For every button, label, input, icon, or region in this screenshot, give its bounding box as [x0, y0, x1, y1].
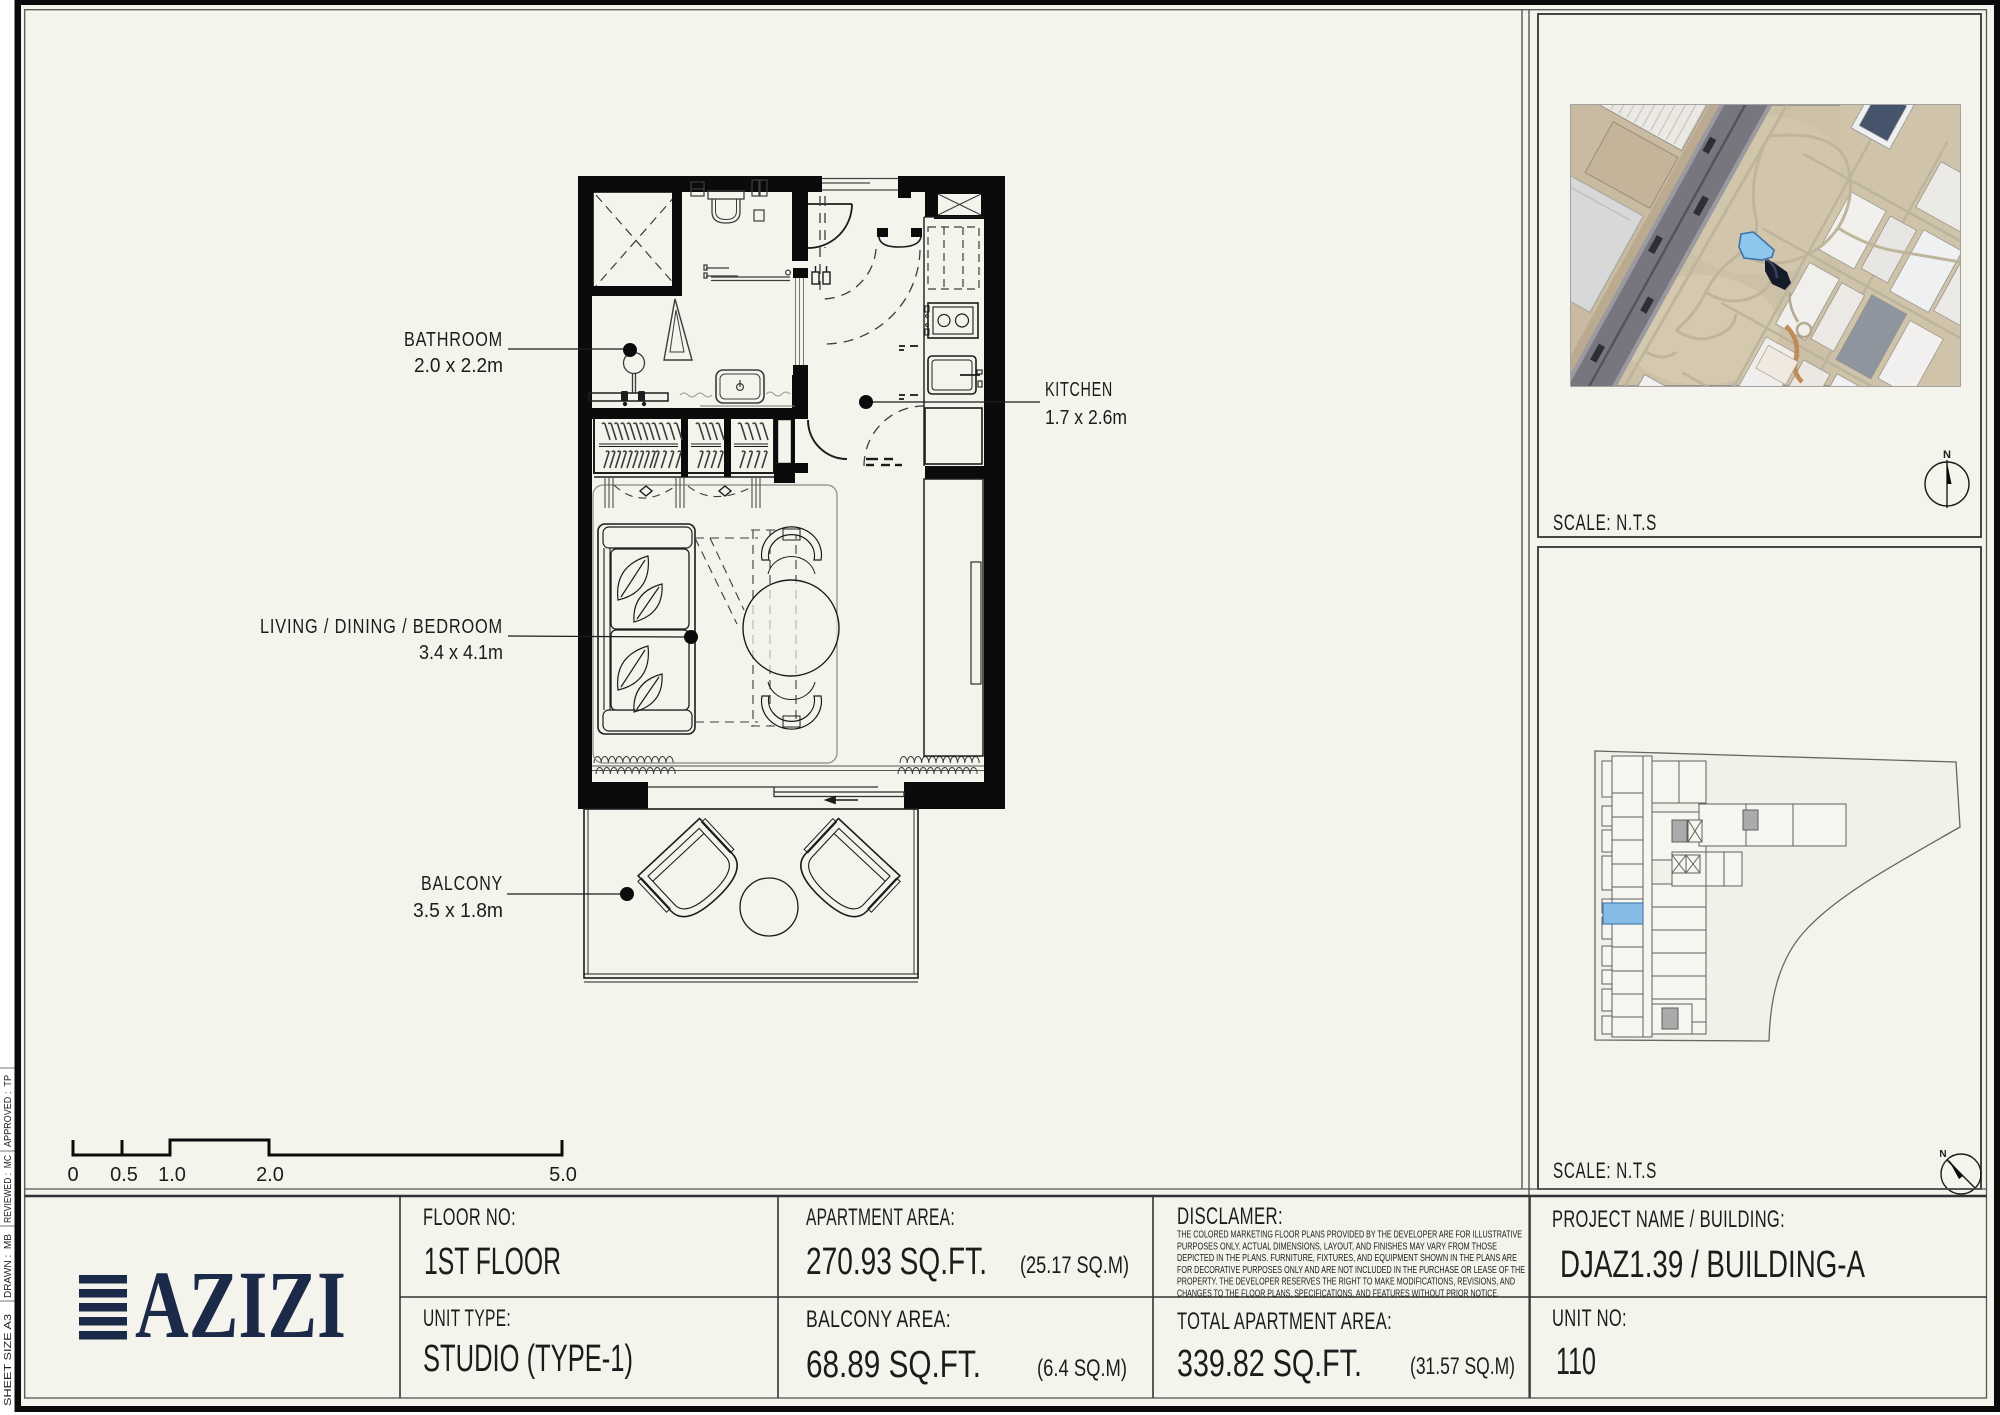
svg-text:1.0: 1.0 [158, 1164, 186, 1186]
svg-text:CHANGES TO THE FLOOR PLANS, SP: CHANGES TO THE FLOOR PLANS, SPECIFICATIO… [1177, 1289, 1499, 1300]
svg-text:2.0: 2.0 [256, 1164, 284, 1186]
svg-text:(31.57 SQ.M): (31.57 SQ.M) [1410, 1353, 1515, 1380]
svg-text:FOR DECORATIVE PURPOSES ONLY A: FOR DECORATIVE PURPOSES ONLY AND ARE NOT… [1177, 1265, 1525, 1276]
svg-text:0: 0 [67, 1164, 78, 1186]
svg-text:PURPOSES ONLY. ACTUAL DIMENSIO: PURPOSES ONLY. ACTUAL DIMENSIONS, LAYOUT… [1177, 1241, 1497, 1252]
svg-text:1.7 x 2.6m: 1.7 x 2.6m [1045, 407, 1127, 429]
svg-text:SHEET SIZE A3: SHEET SIZE A3 [3, 1313, 14, 1406]
svg-text:5.0: 5.0 [549, 1164, 577, 1186]
svg-text:FLOOR NO:: FLOOR NO: [423, 1204, 516, 1231]
svg-text:BATHROOM: BATHROOM [404, 329, 503, 351]
svg-text:DEPICTED IN THE PLANS. FURNITU: DEPICTED IN THE PLANS. FURNITURE, FIXTUR… [1177, 1253, 1517, 1264]
svg-text:PROJECT NAME / BUILDING:: PROJECT NAME / BUILDING: [1552, 1206, 1785, 1233]
svg-text:BALCONY: BALCONY [421, 873, 503, 895]
svg-text:DISCLAMER:: DISCLAMER: [1177, 1203, 1283, 1230]
svg-text:N: N [1943, 449, 1951, 461]
svg-text:STUDIO (TYPE-1): STUDIO (TYPE-1) [423, 1338, 633, 1380]
svg-text:BALCONY AREA:: BALCONY AREA: [806, 1306, 951, 1333]
svg-text:SCALE: N.T.S: SCALE: N.T.S [1553, 510, 1657, 535]
svg-text:1ST FLOOR: 1ST FLOOR [424, 1241, 561, 1283]
svg-text:UNIT NO:: UNIT NO: [1552, 1305, 1627, 1332]
svg-text:3.4 x 4.1m: 3.4 x 4.1m [419, 642, 503, 664]
svg-text:PROPERTY. THE DEVELOPER RESERV: PROPERTY. THE DEVELOPER RESERVES THE RIG… [1177, 1277, 1515, 1288]
svg-text:TOTAL APARTMENT AREA:: TOTAL APARTMENT AREA: [1177, 1308, 1392, 1335]
svg-text:68.89 SQ.FT.: 68.89 SQ.FT. [806, 1344, 981, 1386]
svg-text:APARTMENT AREA:: APARTMENT AREA: [806, 1204, 955, 1231]
svg-text:(25.17 SQ.M): (25.17 SQ.M) [1020, 1252, 1129, 1279]
svg-text:3.5 x 1.8m: 3.5 x 1.8m [413, 900, 503, 922]
svg-text:LIVING / DINING / BEDROOM: LIVING / DINING / BEDROOM [260, 616, 503, 638]
svg-text:AZIZI: AZIZI [135, 1251, 346, 1358]
svg-text:UNIT TYPE:: UNIT TYPE: [423, 1305, 511, 1332]
svg-text:339.82 SQ.FT.: 339.82 SQ.FT. [1177, 1343, 1362, 1385]
svg-text:KITCHEN: KITCHEN [1045, 379, 1113, 401]
svg-text:N: N [1939, 1149, 1946, 1160]
svg-text:2.0 x 2.2m: 2.0 x 2.2m [414, 355, 503, 377]
svg-text:(6.4 SQ.M): (6.4 SQ.M) [1037, 1355, 1127, 1382]
svg-text:REVIEWED : MC: REVIEWED : MC [3, 1155, 14, 1223]
svg-text:DJAZ1.39 / BUILDING-A: DJAZ1.39 / BUILDING-A [1560, 1244, 1865, 1286]
svg-text:270.93 SQ.FT.: 270.93 SQ.FT. [806, 1241, 987, 1283]
svg-text:DRAWN : MB: DRAWN : MB [3, 1234, 14, 1298]
svg-text:SCALE: N.T.S: SCALE: N.T.S [1553, 1158, 1657, 1183]
svg-text:APPROVED : TP: APPROVED : TP [3, 1075, 14, 1147]
svg-text:0.5: 0.5 [110, 1164, 138, 1186]
svg-text:110: 110 [1556, 1341, 1596, 1383]
svg-text:THE COLORED MARKETING FLOOR PL: THE COLORED MARKETING FLOOR PLANS PROVID… [1177, 1230, 1522, 1241]
